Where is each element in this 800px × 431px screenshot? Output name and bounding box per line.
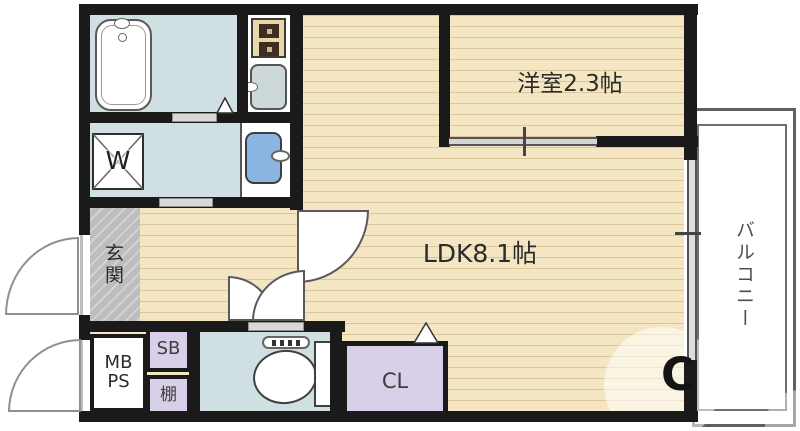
wall-bath-kitchen <box>237 4 248 115</box>
washbasin-faucet <box>271 150 290 162</box>
bathroom-door-marker-icon <box>216 97 234 114</box>
bathtub-faucet <box>114 18 130 29</box>
balcony-window-tick <box>675 232 701 235</box>
toilet-cistern-buttons <box>262 336 310 349</box>
mbps-door-arc <box>8 339 81 412</box>
shelf-box: 棚 <box>146 375 191 416</box>
closet-box: CL <box>342 341 448 421</box>
closet-door-marker-icon <box>413 322 439 344</box>
wall-ldk-divider <box>290 4 303 210</box>
stove-burner <box>259 24 279 38</box>
shoe-box-label: SB <box>157 340 181 359</box>
entrance-door-frame <box>80 235 83 315</box>
shelf-label: 棚 <box>160 387 177 405</box>
wall-hall-bottom <box>79 321 345 332</box>
toilet-door <box>248 322 304 331</box>
watermark-letter: C <box>661 348 694 401</box>
closet-label: CL <box>382 370 408 392</box>
wall-toilet-right <box>330 332 342 412</box>
sliding-door-tick <box>523 127 526 156</box>
bathroom-door <box>172 113 217 122</box>
shoe-box: SB <box>146 327 191 372</box>
western-room-label: 洋室2.3帖 <box>480 70 660 98</box>
balcony-window <box>687 160 697 360</box>
washroom-door <box>159 198 213 207</box>
entrance-label: 玄関 <box>98 232 126 298</box>
bathtub-drain <box>118 33 127 42</box>
wall-western-bottom <box>596 136 698 147</box>
wall-top <box>79 4 698 15</box>
wall-toilet-left <box>189 332 200 412</box>
stove-burner <box>259 42 279 56</box>
wall-western-left <box>439 4 450 147</box>
floor-plan: バルコニー MB PS SB 棚 CL <box>0 0 800 431</box>
entrance-door-arc <box>5 237 79 315</box>
washing-machine: W <box>92 133 144 190</box>
kitchen-stove <box>251 18 286 58</box>
bathtub <box>95 19 152 111</box>
meter-pipe-space-box: MB PS <box>90 334 147 412</box>
balcony-label: バルコニー <box>730 210 756 340</box>
washer-label: W <box>106 148 131 174</box>
pipe-space-label: PS <box>105 373 133 392</box>
wall-bottom <box>79 411 698 422</box>
ldk-label: LDK8.1帖 <box>380 239 580 269</box>
